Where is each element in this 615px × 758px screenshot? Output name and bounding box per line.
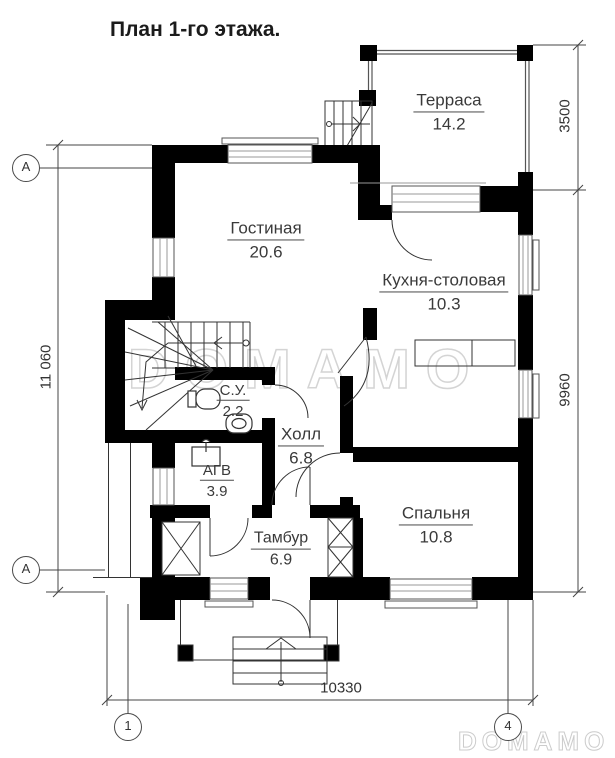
room-name: Тамбур	[251, 530, 311, 550]
dimension-left: 11 060	[38, 345, 55, 390]
room-label-hall: Холл 6.8	[278, 424, 324, 467]
room-area: 3.9	[200, 481, 234, 500]
room-area: 6.9	[251, 550, 311, 570]
room-name: Спальня	[399, 503, 473, 525]
axis-marker-4: 4	[494, 713, 522, 741]
dimension-bottom: 10330	[320, 680, 362, 697]
room-name: Терраса	[413, 90, 484, 112]
room-label-living: Гостиная 20.6	[227, 218, 304, 261]
room-name: Кухня-столовая	[379, 270, 508, 292]
axis-marker-a-top: А	[12, 154, 40, 182]
room-label-vestibule: Тамбур 6.9	[251, 530, 311, 571]
room-area: 20.6	[227, 240, 304, 262]
dimension-right-middle: 9960	[557, 373, 574, 406]
room-area: 6.8	[278, 446, 324, 468]
room-area: 2.2	[217, 401, 250, 420]
room-name: Гостиная	[227, 218, 304, 240]
floor-plan-page: DOMAMO DOMAMO	[0, 0, 615, 758]
toilet-icon	[188, 389, 220, 409]
kitchen-counter-icon	[415, 340, 515, 366]
room-name: С.У.	[217, 382, 250, 401]
room-label-bedroom: Спальня 10.8	[399, 503, 473, 546]
room-area: 10.3	[379, 292, 508, 314]
dimension-right-top: 3500	[557, 99, 574, 132]
room-label-boiler: АГВ 3.9	[200, 462, 234, 501]
room-label-kitchen: Кухня-столовая 10.3	[379, 270, 508, 313]
room-label-bathroom: С.У. 2.2	[217, 382, 250, 421]
axis-marker-a-bottom: А	[12, 556, 40, 584]
room-name: Холл	[278, 424, 324, 446]
room-label-terrace: Терраса 14.2	[413, 90, 484, 133]
axis-marker-1: 1	[114, 713, 142, 741]
page-title: План 1-го этажа.	[110, 18, 280, 42]
room-area: 14.2	[413, 112, 484, 134]
porch-steps-icon	[233, 637, 327, 686]
floor-plan-drawing	[0, 0, 615, 758]
room-area: 10.8	[399, 525, 473, 547]
room-name: АГВ	[200, 462, 234, 481]
terrace-steps-icon	[325, 101, 372, 146]
